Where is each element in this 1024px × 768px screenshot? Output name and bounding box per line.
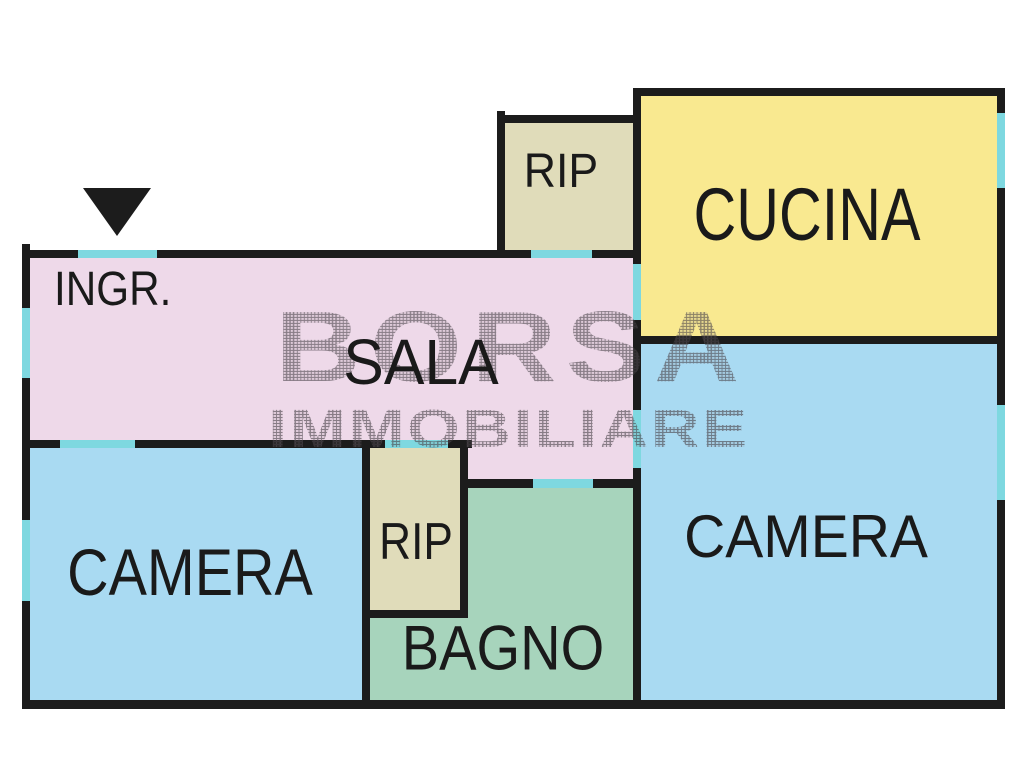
entrance-arrow-icon [83,188,151,236]
room-label-cucina: CUCINA [694,178,921,252]
room-label-camera-left: CAMERA [67,539,313,605]
camera-right-window-opening [997,405,1005,500]
room-label-sala: SALA [343,330,498,394]
floor-plan: BORSA IMMOBILIARE INGR. SALA RIP CUCINA … [0,0,1024,768]
room-label-ingresso: INGR. [54,266,171,314]
rip-top-door-opening [531,250,592,258]
wall-camera-rip-divider [362,440,370,704]
cucina-window-opening [997,113,1005,188]
room-label-camera-right: CAMERA [684,507,928,567]
camera-left-door-opening [60,440,135,448]
ingresso-window-opening [22,308,30,378]
room-label-bagno: BAGNO [402,618,605,681]
rip-middle-door-opening [385,440,448,448]
camera-right-door-opening [633,410,641,468]
wall-rip-bagno-divider [460,440,468,618]
camera-left-window-opening [22,520,30,601]
bagno-door-opening [533,479,593,488]
room-label-rip-top: RIP [524,148,598,196]
wall-cucina-top [633,88,1005,96]
room-area-sala-corridor [468,444,637,484]
wall-rip-top-left [497,111,505,258]
wall-cucina-bottom [633,336,1005,344]
sala-cucina-door-opening [633,264,641,320]
wall-center-vertical [633,88,641,704]
wall-rip-top-upper [497,115,641,123]
wall-bottom-exterior [22,700,1005,709]
entrance-door-opening [78,250,157,258]
room-label-rip-middle: RIP [379,516,453,568]
